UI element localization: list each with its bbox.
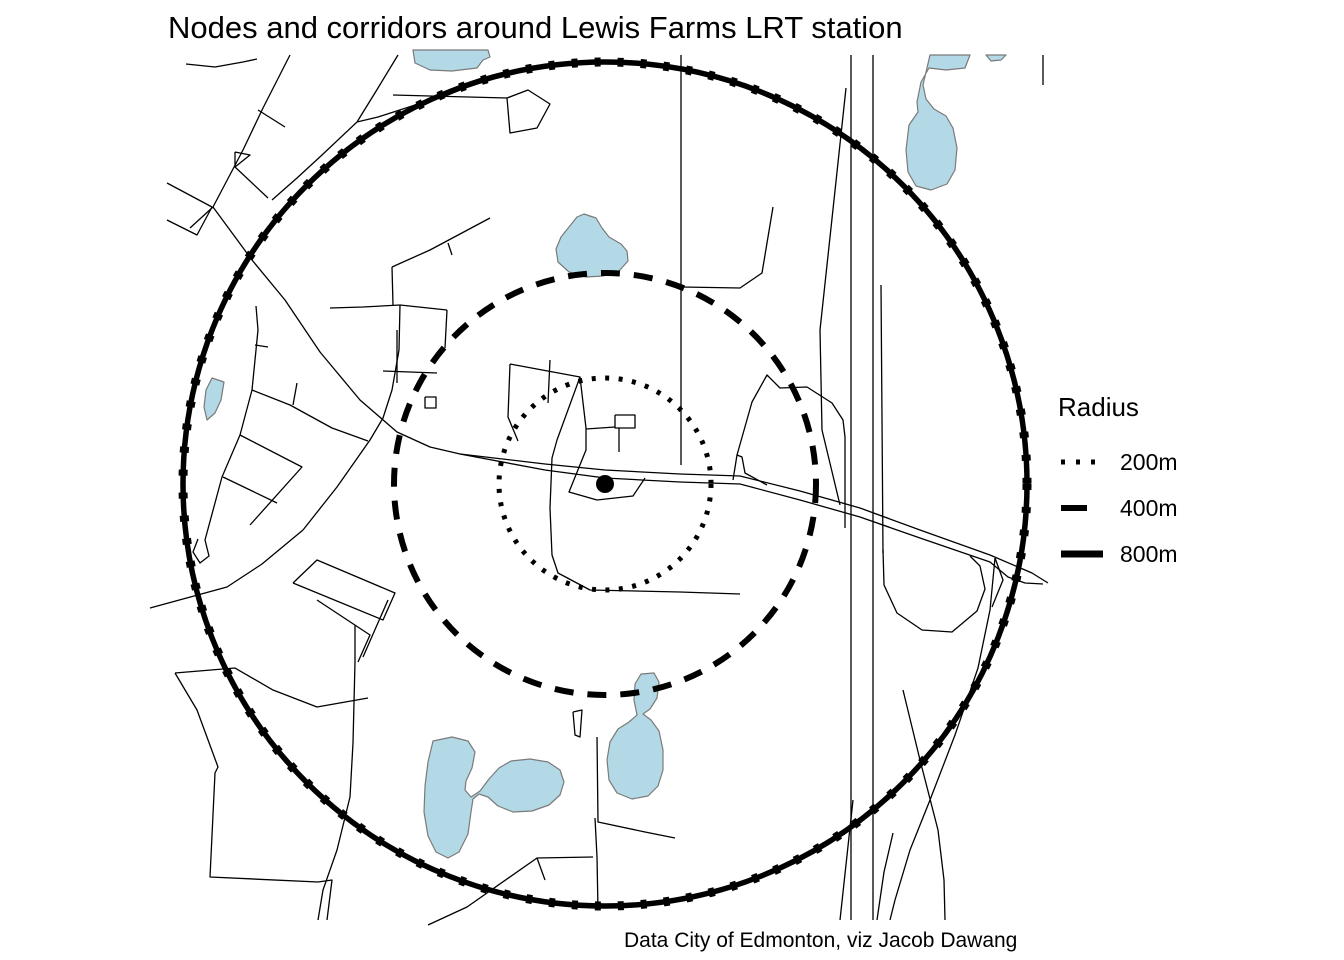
road-line (167, 183, 212, 207)
road-line (293, 560, 395, 620)
road-line (615, 415, 635, 428)
road-line (363, 600, 388, 657)
road-line (548, 360, 550, 403)
road-line (186, 59, 257, 67)
lake-polygon (413, 50, 490, 71)
road-line (881, 285, 883, 553)
road-line (235, 152, 250, 167)
road-line (252, 390, 368, 441)
road-line (428, 857, 593, 925)
dotted-line-swatch (1058, 454, 1106, 470)
legend-item-label: 200m (1120, 449, 1178, 476)
road-line (586, 427, 615, 429)
lake-polygon (556, 214, 628, 277)
road-line (190, 55, 290, 228)
legend-item-label: 800m (1120, 541, 1178, 568)
road-line (318, 625, 355, 920)
road-line (223, 477, 277, 503)
legend-item-200m: 200m (1058, 450, 1178, 474)
road-line (445, 310, 447, 348)
legend-items: 200m400m800m (1058, 450, 1178, 566)
road-line (877, 833, 893, 920)
road-line (537, 858, 545, 880)
road-line (737, 455, 767, 485)
road-line (507, 90, 550, 133)
road-line (508, 364, 518, 441)
road-line (733, 375, 845, 528)
lake-polygon (986, 55, 1006, 61)
road-line (392, 218, 490, 267)
caption: Data City of Edmonton, viz Jacob Dawang (624, 929, 1017, 953)
legend: Radius 200m400m800m (1058, 392, 1178, 566)
road-line (595, 818, 598, 910)
road-line (383, 371, 437, 373)
road-line (330, 305, 447, 310)
road-line (903, 690, 945, 920)
road-line (425, 397, 436, 408)
legend-item-800m: 800m (1058, 542, 1178, 566)
road-line (167, 207, 212, 235)
map-page: Nodes and corridors around Lewis Farms L… (0, 0, 1344, 960)
road-line (460, 454, 1048, 583)
legend-item-400m: 400m (1058, 496, 1178, 520)
road-line (682, 207, 773, 288)
road-line (235, 167, 268, 198)
road-line (820, 88, 846, 505)
station-dot (596, 475, 614, 493)
road-line (393, 95, 507, 98)
road-line (240, 435, 302, 525)
road-line (460, 454, 1043, 584)
road-line (293, 383, 297, 405)
lake-polygon (204, 378, 224, 420)
road-line (883, 550, 985, 632)
road-line (317, 600, 370, 662)
road-line (573, 710, 582, 737)
road-line (258, 110, 285, 127)
lake-polygon (424, 737, 564, 858)
legend-title: Radius (1058, 392, 1178, 423)
road-line (193, 306, 258, 563)
road-line (175, 668, 368, 707)
road-line (213, 207, 460, 454)
dashed-line-swatch (1058, 500, 1106, 516)
solid-line-swatch (1058, 546, 1106, 562)
road-line (392, 267, 393, 305)
road-line (272, 122, 357, 200)
lake-polygon (906, 55, 970, 190)
road-line (448, 243, 452, 255)
legend-item-label: 400m (1120, 495, 1178, 522)
